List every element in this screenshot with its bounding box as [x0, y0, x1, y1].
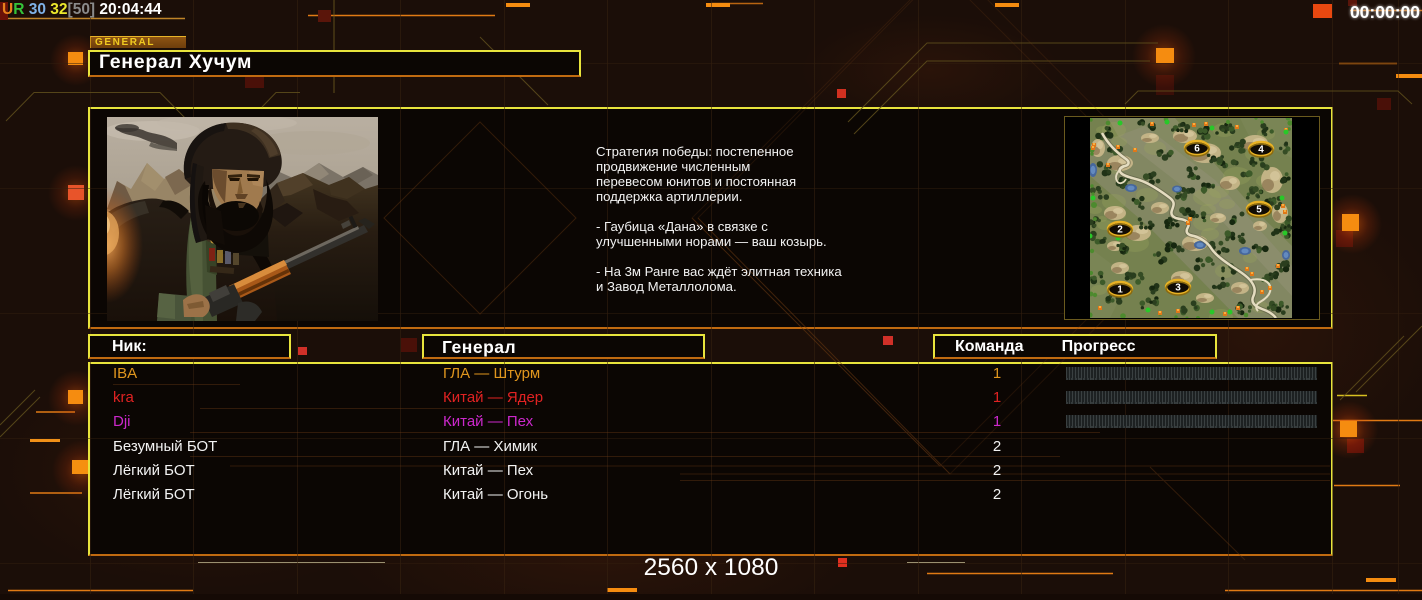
svg-text:5: 5 [1256, 205, 1262, 216]
svg-text:4: 4 [1258, 145, 1264, 156]
svg-text:2: 2 [1117, 225, 1123, 236]
svg-text:6: 6 [1194, 144, 1200, 155]
svg-text:3: 3 [1175, 283, 1181, 294]
svg-text:1: 1 [1117, 285, 1123, 296]
